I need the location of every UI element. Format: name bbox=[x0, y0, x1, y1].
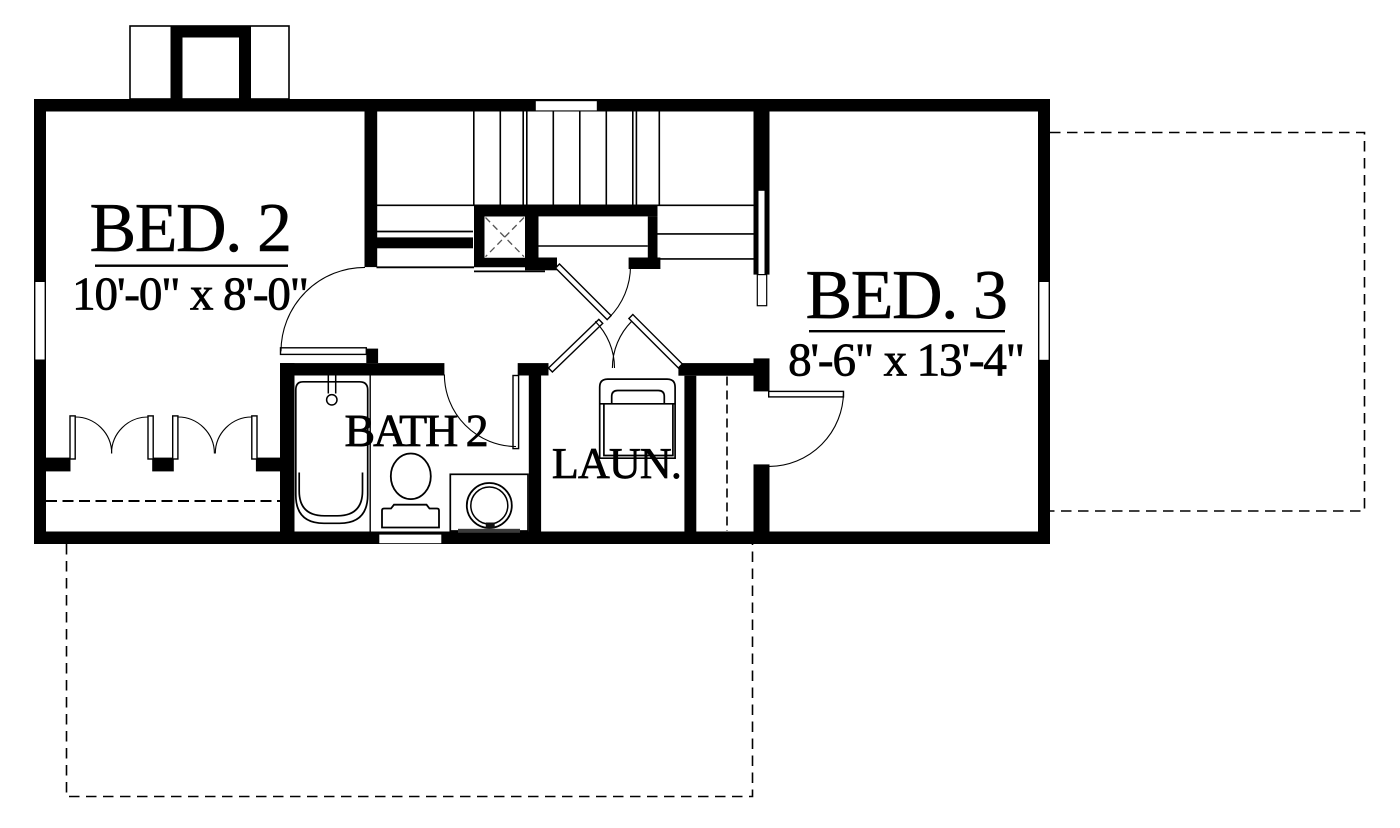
svg-text:BED. 3: BED. 3 bbox=[805, 257, 1006, 334]
svg-text:8'-6" x 13'-4": 8'-6" x 13'-4" bbox=[788, 334, 1024, 386]
svg-text:10'-0" x 8'-0": 10'-0" x 8'-0" bbox=[72, 268, 308, 320]
svg-text:LAUN.: LAUN. bbox=[552, 439, 681, 488]
svg-text:BATH 2: BATH 2 bbox=[344, 405, 486, 456]
svg-text:BED. 2: BED. 2 bbox=[89, 190, 290, 267]
